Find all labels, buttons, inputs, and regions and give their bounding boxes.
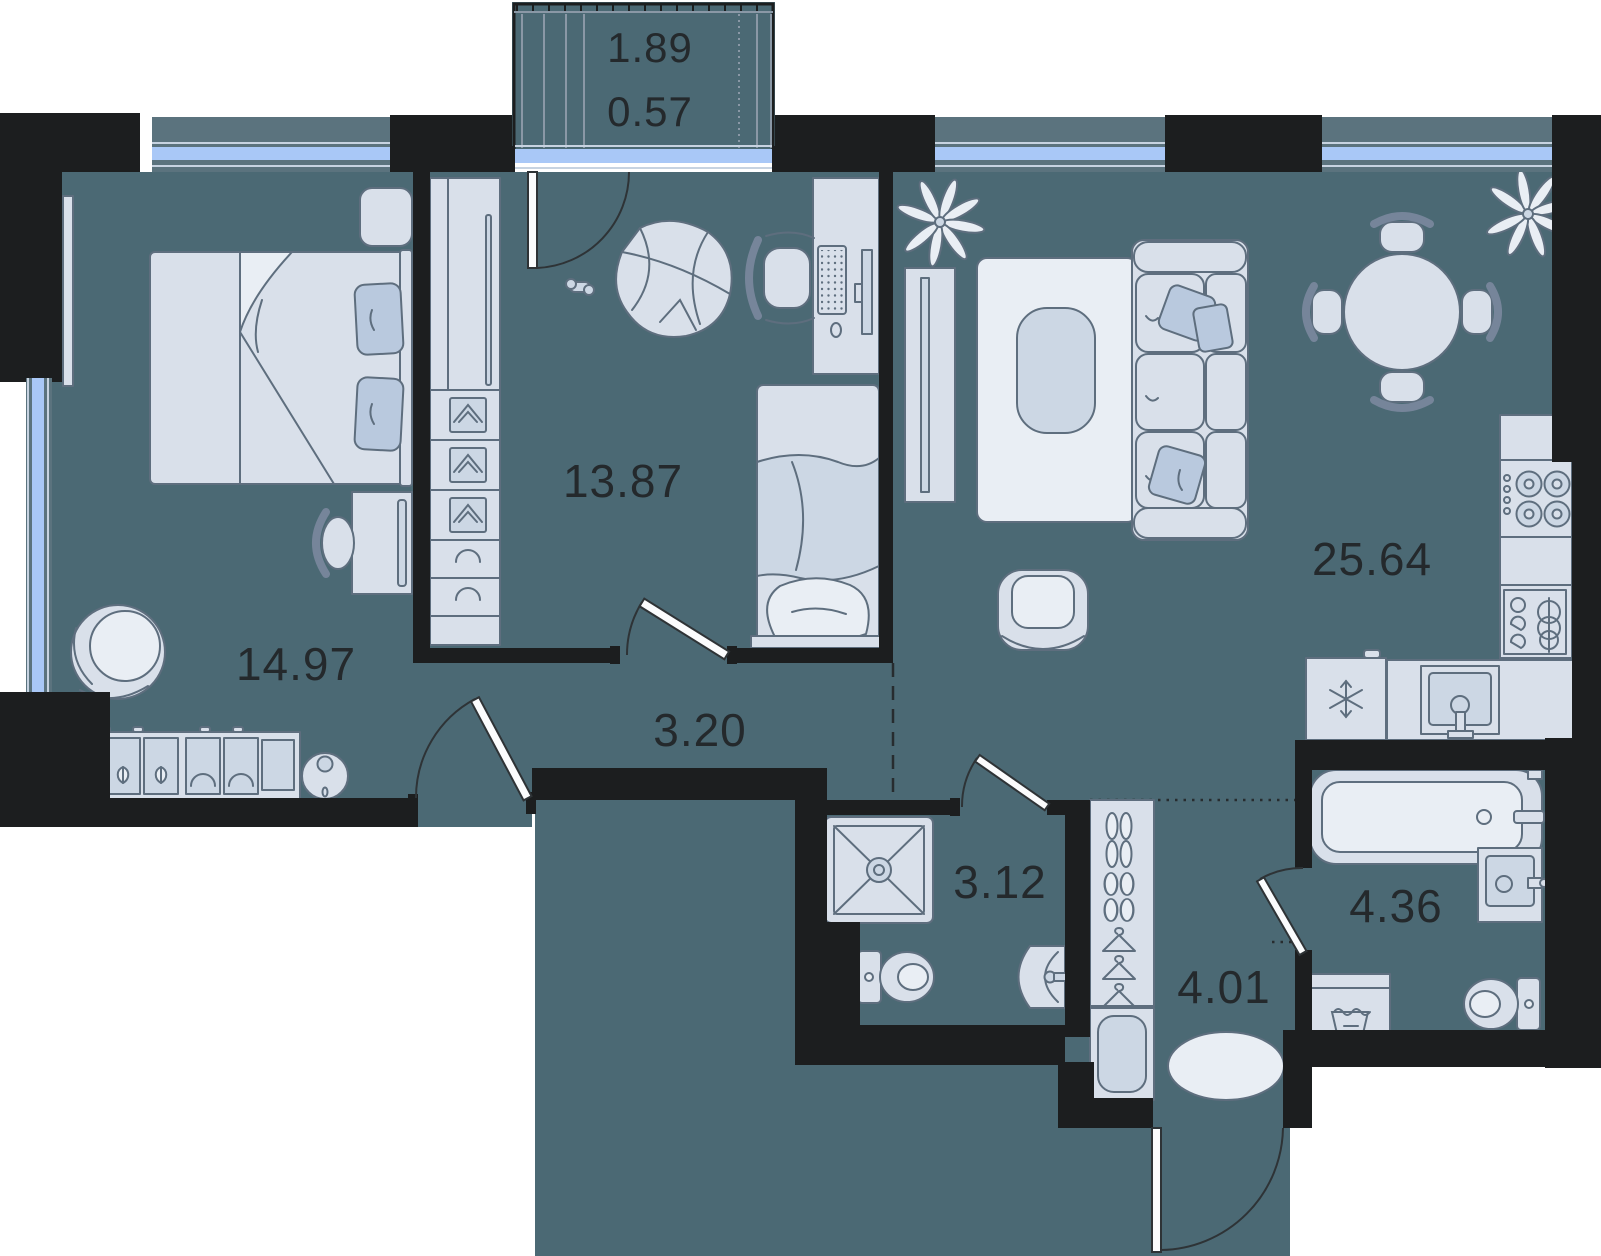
wall-sink-icon bbox=[1019, 946, 1067, 1008]
desk-chair bbox=[322, 517, 354, 569]
nightstand bbox=[360, 188, 412, 246]
pillow bbox=[354, 283, 404, 355]
dining-chair bbox=[1374, 372, 1430, 408]
dining-chair bbox=[1462, 286, 1498, 338]
shower-area-label: 3.12 bbox=[953, 856, 1047, 908]
toilet-icon bbox=[858, 951, 934, 1003]
entry-area-label: 4.01 bbox=[1177, 961, 1271, 1013]
living-lower-floor bbox=[893, 740, 1295, 802]
bathroom-area-label: 4.36 bbox=[1349, 880, 1443, 932]
dish-rack-icon bbox=[1504, 590, 1566, 654]
dining-chair bbox=[1306, 286, 1342, 338]
single-bed bbox=[751, 385, 885, 648]
robot-vacuum bbox=[302, 753, 348, 799]
coffee-table bbox=[1017, 308, 1095, 433]
balcony-area-full-label: 1.89 bbox=[607, 24, 693, 71]
tall-wardrobe bbox=[430, 178, 500, 645]
tv-icon bbox=[921, 278, 929, 492]
kitchen-sink-icon bbox=[1421, 666, 1499, 738]
shower-tray-icon bbox=[825, 817, 933, 923]
oval-rug bbox=[1168, 1032, 1284, 1100]
toilet-icon bbox=[1464, 978, 1540, 1030]
floor-plan-page: 1.89 0.57 14.97 13.87 25.64 3.20 3.12 4.… bbox=[0, 0, 1601, 1256]
tv-stand bbox=[905, 268, 955, 502]
shoe-wardrobe bbox=[1090, 800, 1154, 1007]
fridge-icon bbox=[1306, 650, 1386, 740]
balcony-area-label: 0.57 bbox=[607, 88, 693, 135]
living-area-label: 25.64 bbox=[1312, 533, 1432, 585]
bean-bag-chair bbox=[616, 221, 732, 337]
double-bed bbox=[150, 250, 412, 486]
balcony-window bbox=[515, 149, 772, 163]
sofa-pillow bbox=[1192, 303, 1233, 352]
hallway-area-label: 3.20 bbox=[653, 704, 747, 756]
study-area-label: 13.87 bbox=[563, 455, 683, 507]
tv-icon bbox=[63, 196, 73, 386]
monitor-icon bbox=[862, 250, 872, 334]
floor-plan-canvas: 1.89 0.57 14.97 13.87 25.64 3.20 3.12 4.… bbox=[0, 0, 1601, 1256]
living-window-right bbox=[1322, 117, 1552, 172]
round-dining-table bbox=[1344, 254, 1460, 370]
bedroom-window bbox=[152, 117, 390, 172]
dining-chair bbox=[1374, 216, 1430, 252]
bench bbox=[1090, 1008, 1154, 1100]
pillow bbox=[354, 377, 404, 451]
bath-sink-icon bbox=[1478, 848, 1548, 922]
bedroom-area-label: 14.97 bbox=[236, 638, 356, 690]
armchair bbox=[998, 570, 1088, 650]
living-window-left bbox=[935, 117, 1165, 172]
study-desk bbox=[813, 178, 879, 374]
bed-pillow bbox=[767, 578, 869, 643]
egg-chair bbox=[71, 605, 165, 699]
sofa bbox=[1132, 240, 1248, 540]
bedroom-side-window bbox=[26, 378, 52, 692]
